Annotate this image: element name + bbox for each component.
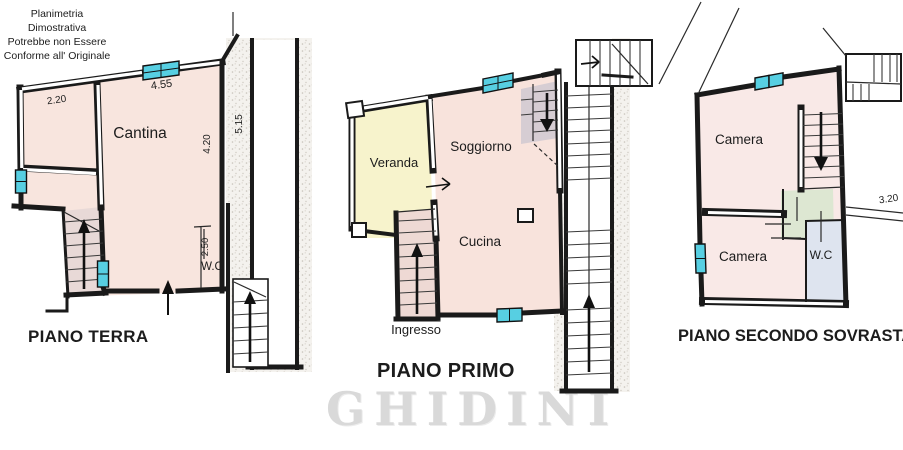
plan-title-piano-secondo: PIANO SECONDO SOVRASTANTE [678, 327, 903, 345]
flue [518, 209, 533, 222]
room-label-camera-top: Camera [715, 132, 764, 147]
room-label-wc: W.C [810, 248, 833, 262]
room-label-soggiorno: Soggiorno [450, 139, 512, 154]
boundary-line [659, 2, 701, 84]
disclaimer-note: Planimetria Dimostrativa Potrebbe non Es… [4, 8, 111, 62]
plan-title-piano-primo: PIANO PRIMO [377, 360, 515, 382]
room-label-veranda: Veranda [370, 155, 419, 170]
disclaimer-line-4: Conforme all' Originale [4, 50, 111, 62]
dim-420: 4.20 [202, 134, 213, 154]
pillar [352, 223, 366, 237]
plan-piano-terra: 5.15 [14, 12, 312, 372]
room-label-cucina: Cucina [459, 234, 502, 249]
boundary-line [699, 8, 739, 92]
disclaimer-line-2: Dimostrativa [28, 22, 87, 34]
room-label-wc: W.C [201, 261, 223, 273]
exterior-staircase [233, 279, 268, 367]
disclaimer-line-3: Potrebbe non Essere [8, 36, 107, 48]
dim-250: 2.50 [200, 238, 211, 257]
room-label-ingresso: Ingresso [391, 322, 441, 337]
exterior-staircase-top [576, 40, 652, 86]
floorplan-sheet: GHIDINI Planimetria Dimostrativa Potrebb… [0, 0, 903, 450]
pillar [346, 101, 364, 118]
boundary-line [823, 28, 846, 56]
room-label-cantina: Cantina [113, 125, 167, 142]
plan-piano-secondo: Camera Camera W.C 3.20 PIANO SECONDO SOV… [678, 8, 903, 345]
plan-title-piano-terra: PIANO TERRA [28, 327, 148, 346]
dim-515: 5.15 [234, 114, 245, 134]
floorplan-canvas: Planimetria Dimostrativa Potrebbe non Es… [0, 0, 903, 450]
plan-piano-primo: Veranda Soggiorno Cucina Ingresso PIANO … [346, 2, 701, 392]
room-label-camera-bottom: Camera [719, 249, 768, 264]
disclaimer-line-1: Planimetria [31, 8, 84, 20]
exterior-wall-lines [846, 207, 903, 221]
dim-320: 3.20 [878, 193, 899, 207]
